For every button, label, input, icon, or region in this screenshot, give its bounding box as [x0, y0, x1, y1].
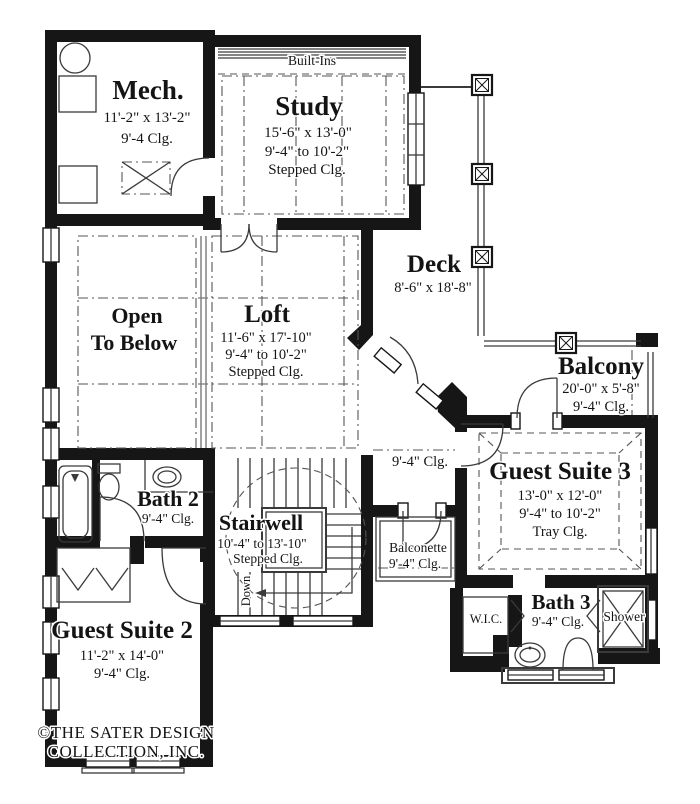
loft-dimensions: 11'-6" x 17'-10"	[220, 330, 312, 346]
floor-plan-drawing: Built-Ins Mech. 11'-2" x 13'-2" 9'-4 Clg…	[0, 0, 700, 804]
sink-bath3	[515, 643, 545, 667]
bath-3-ceiling: 9'-4" Clg.	[532, 614, 584, 629]
deck-dimensions: 8'-6" x 18'-8"	[394, 280, 472, 296]
balconette-label: Balconette	[389, 540, 447, 555]
balcony-ceiling: 9'-4" Clg.	[573, 399, 629, 415]
wic-label: W.I.C.	[470, 612, 503, 626]
guest-suite-3-dimensions: 13'-0" x 12'-0"	[518, 488, 603, 504]
deck-columns	[472, 75, 576, 353]
guest-suite-3-label: Guest Suite 3	[489, 458, 631, 485]
guest-suite-3-ceiling-type: Tray Clg.	[532, 524, 587, 540]
copyright-line1: ©THE SATER DESIGN	[37, 723, 214, 742]
study-dimensions: 15'-6" x 13'-0"	[264, 125, 352, 141]
stairwell-ceiling-type: Stepped Clg.	[233, 551, 303, 566]
shower-label: Shower	[603, 609, 645, 624]
loft-ceiling-type: Stepped Clg.	[229, 364, 304, 380]
bath-2-ceiling: 9'-4" Clg.	[142, 511, 194, 526]
attic-chase-symbol	[122, 162, 170, 194]
stairwell-label: Stairwell	[219, 510, 303, 535]
open-to-below-line2: To Below	[91, 330, 178, 355]
mech-dimensions: 11'-2" x 13'-2"	[103, 110, 190, 126]
balcony-label: Balcony	[558, 353, 645, 380]
guest-suite-2-ceiling: 9'-4" Clg.	[94, 666, 150, 682]
toilet-bath2	[98, 464, 120, 500]
built-ins-label: Built-Ins	[288, 53, 336, 68]
balconette-ceiling: 9'-4" Clg.	[389, 556, 441, 571]
guest-suite-3-ceiling-range: 9'-4" to 10'-2"	[519, 506, 601, 522]
hall-ceiling: 9'-4" Clg.	[392, 454, 448, 470]
guest-suite-2-dimensions: 11'-2" x 14'-0"	[80, 648, 164, 664]
bath-2-label: Bath 2	[137, 486, 199, 511]
mech-unit-2	[59, 166, 97, 203]
mech-unit-1	[59, 76, 96, 112]
bathtub	[59, 466, 92, 542]
open-to-below-line1: Open	[111, 303, 162, 328]
copyright-line2: COLLECTION, INC.	[48, 742, 205, 761]
water-heater-symbol	[60, 43, 90, 73]
bath-3-label: Bath 3	[532, 590, 591, 614]
study-ceiling-range: 9'-4" to 10'-2"	[265, 144, 349, 160]
study-window	[408, 93, 424, 185]
closet-outline	[57, 548, 130, 602]
stairwell-down-label: Down	[239, 575, 253, 606]
guest-suite-2-label: Guest Suite 2	[51, 617, 193, 644]
study-ceiling-type: Stepped Clg.	[268, 162, 346, 178]
toilet-bath3	[563, 638, 593, 670]
floor-plan-canvas: Built-Ins Mech. 11'-2" x 13'-2" 9'-4 Clg…	[0, 0, 700, 804]
stairwell-dimensions: 10'-4" to 13'-10"	[217, 536, 306, 551]
balcony-dimensions: 20'-0" x 5'-8"	[562, 381, 640, 397]
bath-3-bay-windows	[502, 668, 614, 683]
loft-label: Loft	[244, 301, 291, 328]
mech-label: Mech.	[112, 75, 183, 105]
loft-ceiling-range: 9'-4" to 10'-2"	[225, 347, 307, 363]
deck-label: Deck	[407, 251, 461, 278]
labels: Built-Ins Mech. 11'-2" x 13'-2" 9'-4 Clg…	[37, 53, 645, 761]
guest-suite-3-window	[646, 528, 657, 574]
study-label: Study	[275, 91, 343, 121]
mech-ceiling: 9'-4 Clg.	[121, 131, 173, 147]
